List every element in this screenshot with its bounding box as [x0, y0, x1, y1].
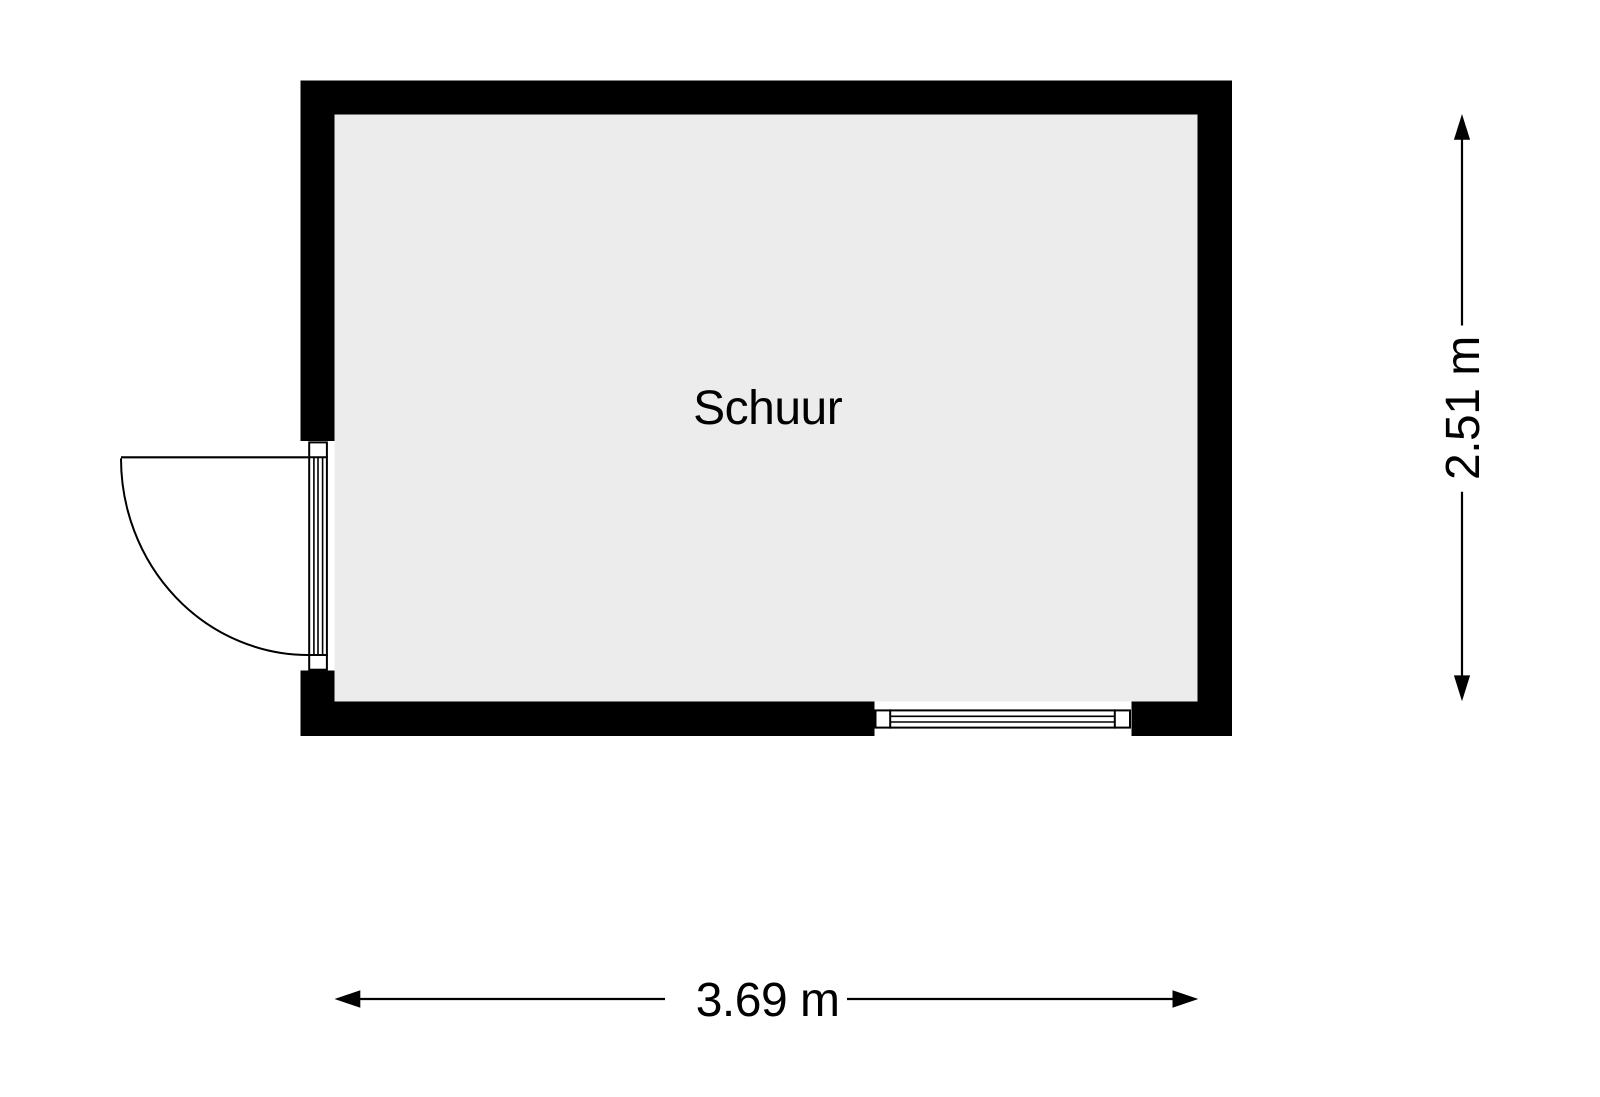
svg-text:2.51 m: 2.51 m	[1437, 336, 1490, 480]
svg-text:Schuur: Schuur	[693, 382, 843, 435]
svg-text:3.69 m: 3.69 m	[696, 974, 840, 1027]
